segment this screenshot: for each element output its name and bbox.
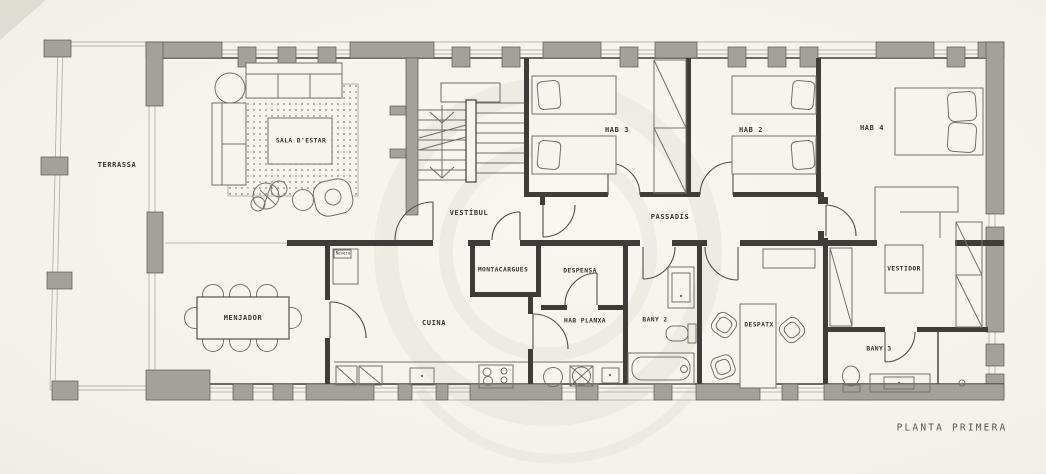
plan-title: PLANTA PRIMERA	[897, 423, 1008, 434]
room-label-cuina: CUINA	[422, 319, 446, 327]
room-label-menjador: MENJADOR	[224, 314, 263, 322]
pillow-icon	[537, 80, 561, 110]
room-label-bany2: BANY 2	[642, 317, 667, 324]
room-label-hab4: HAB 4	[860, 124, 884, 132]
bedroom2-furniture	[732, 76, 816, 174]
pouf-icon	[293, 190, 314, 211]
office-chair-icon	[709, 310, 740, 341]
office-chair-icon	[777, 315, 808, 346]
floor-plan-drawing	[0, 0, 1046, 474]
room-label-terrassa: TERRASSA	[98, 161, 137, 169]
dressing-room-furniture	[830, 222, 982, 327]
laundry-fixtures	[533, 362, 623, 387]
room-label-passadis: PASSADÍS	[651, 213, 690, 221]
toilet-icon	[843, 366, 860, 386]
sink-icon	[672, 273, 690, 302]
sofa-icon	[246, 63, 342, 98]
pillow-icon	[791, 80, 815, 110]
room-label-despatx: DESPATX	[744, 322, 773, 329]
pillow-icon	[947, 122, 977, 153]
room-label-despensa: DESPENSA	[563, 268, 597, 275]
room-label-hab2: HAB 2	[739, 126, 763, 134]
room-label-sala-destar: SALA D'ESTAR	[276, 138, 326, 145]
desk-icon	[740, 304, 776, 388]
scan-corner-shadow	[0, 0, 46, 40]
wardrobe-counter-icon	[875, 187, 958, 240]
room-label-montacargues: MONTACARGUES	[478, 267, 528, 274]
office-chair-icon	[709, 353, 737, 381]
pillow-icon	[947, 91, 977, 122]
shelf-icon	[763, 249, 815, 268]
room-label-hab3: HAB 3	[605, 126, 629, 134]
side-table-icon	[215, 73, 245, 103]
terrace-walls	[41, 40, 146, 400]
room-label-vestibul: VESTÍBUL	[450, 209, 489, 217]
floor-plan: TERRASSA SALA D'ESTAR VESTÍBUL HAB 3 HAB…	[0, 0, 1046, 474]
pillow-icon	[791, 140, 815, 170]
room-label-vestidor: VESTIDOR	[887, 266, 921, 273]
pillow-icon	[537, 140, 561, 170]
office-furniture	[709, 249, 815, 388]
room-label-bany3: BANY 3	[866, 346, 891, 353]
fridge-label: Nevera	[336, 251, 350, 256]
bedroom4-furniture	[875, 88, 983, 240]
room-label-hab-planxa: HAB PLANXA	[564, 318, 606, 325]
